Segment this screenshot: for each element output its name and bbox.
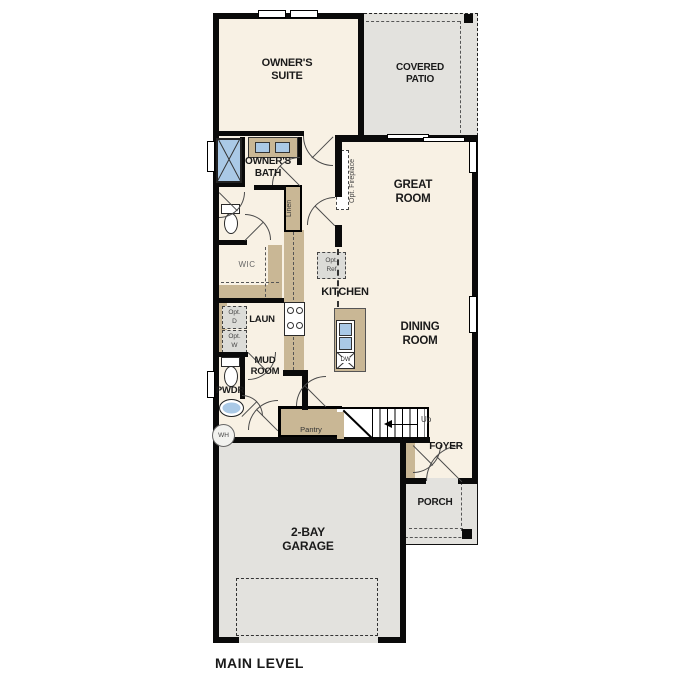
sink-basin — [339, 337, 352, 350]
wall — [213, 13, 364, 19]
opt-dryer-box: Opt. D — [222, 306, 247, 329]
sink-basin — [255, 142, 270, 153]
stairs — [337, 407, 429, 437]
stair-break-line — [343, 410, 372, 438]
wall — [406, 478, 426, 484]
covered-patio-label: COVERED PATIO — [382, 62, 458, 86]
wic-label: WIC — [234, 260, 260, 270]
great-room-label: GREAT ROOM — [382, 179, 444, 206]
powder-sink — [219, 399, 244, 417]
porch-label: PORCH — [417, 497, 453, 509]
opt-washer-label-2: W — [223, 342, 246, 350]
linen-closet: Linen — [284, 185, 302, 232]
porch-dashed-line — [409, 528, 463, 529]
opt-dryer-label-2: D — [223, 318, 246, 326]
wic-shelf — [219, 285, 282, 298]
window — [258, 10, 286, 18]
water-heater: WH — [212, 424, 235, 447]
opt-washer-label-1: Opt. — [223, 333, 246, 341]
upper-cabinet-dashed — [293, 232, 294, 370]
window — [290, 10, 318, 18]
wic-rod-dashed — [221, 282, 279, 283]
dishwasher-label: DW — [337, 357, 354, 363]
powder-label: PWDR — [214, 385, 246, 396]
mud-room-label: MUD ROOM — [246, 355, 284, 377]
linen-label: Linen — [286, 187, 300, 230]
vanity — [248, 137, 298, 158]
owners-bath-label: OWNER'S BATH — [230, 156, 306, 180]
island-sink — [336, 320, 355, 353]
water-heater-label: WH — [218, 432, 229, 439]
wall — [378, 637, 405, 643]
wall — [213, 240, 247, 245]
stairs-up-label: Up — [421, 415, 441, 425]
wall — [213, 298, 284, 303]
opt-fireplace-label: Opt. Fireplace — [349, 150, 363, 212]
wall — [213, 13, 219, 643]
porch-slab — [405, 478, 478, 545]
patio-post — [464, 14, 473, 23]
wall — [213, 637, 239, 643]
wall — [335, 225, 342, 247]
garage-door-outline — [236, 578, 378, 636]
wall — [335, 142, 342, 197]
range — [284, 302, 305, 336]
sink-basin — [275, 142, 290, 153]
stair-arrow-head — [384, 420, 392, 428]
toilet-bowl — [224, 366, 238, 387]
porch-post — [462, 529, 472, 539]
owners-suite-label: OWNER'S SUITE — [237, 57, 337, 83]
wall — [400, 440, 406, 643]
porch-dashed-line — [461, 482, 462, 531]
opt-dryer-label-1: Opt. — [223, 309, 246, 317]
laundry-label: LAUN — [247, 314, 277, 325]
foyer-label: FOYER — [428, 441, 464, 453]
sliding-door-panel — [423, 137, 465, 142]
dining-room-label: DINING ROOM — [389, 321, 451, 348]
pantry-label: Pantry — [296, 425, 326, 434]
patio-dashed-line — [366, 21, 460, 22]
opt-ref-label-2: Ref — [318, 266, 345, 274]
patio-dashed-line — [460, 21, 461, 133]
sink-basin — [339, 323, 352, 336]
opt-washer-box: Opt. W — [222, 330, 247, 353]
stair-post — [337, 412, 344, 439]
window — [469, 296, 477, 333]
wall — [213, 131, 304, 136]
opt-ref-box: Opt. Ref — [317, 252, 346, 279]
plan-title: MAIN LEVEL — [215, 655, 325, 672]
wic-rod-dashed — [265, 247, 266, 297]
window — [207, 141, 215, 172]
wall — [254, 185, 286, 190]
stair-arrow-line — [392, 424, 418, 426]
wall — [358, 13, 364, 142]
dishwasher: DW — [336, 352, 355, 369]
floor-plan: Linen Pantry DW Opt. Ref Opt. D Opt. W — [0, 0, 687, 687]
opt-ref-label-1: Opt. — [318, 257, 345, 265]
kitchen-counter — [284, 230, 304, 372]
kitchen-label: KITCHEN — [314, 286, 376, 299]
garage-label: 2-BAY GARAGE — [277, 525, 339, 553]
window — [469, 141, 477, 173]
